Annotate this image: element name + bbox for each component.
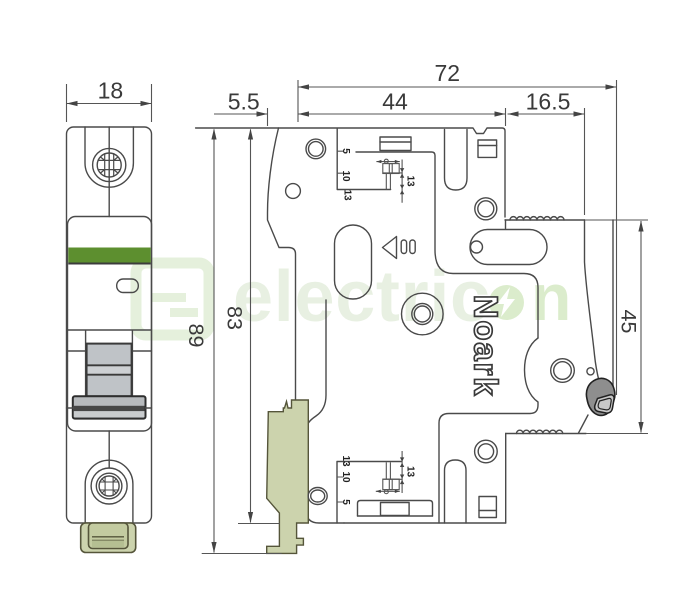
svg-text:13: 13 xyxy=(342,189,353,201)
svg-text:5: 5 xyxy=(340,499,351,505)
svg-text:18: 18 xyxy=(98,77,124,103)
svg-text:44: 44 xyxy=(382,89,408,115)
svg-text:5.5: 5.5 xyxy=(228,89,260,115)
svg-text:83: 83 xyxy=(223,306,247,330)
svg-text:72: 72 xyxy=(435,60,461,86)
svg-text:45: 45 xyxy=(617,310,641,334)
svg-text:5: 5 xyxy=(340,148,351,154)
svg-text:n: n xyxy=(531,260,571,334)
svg-text:10: 10 xyxy=(340,170,351,182)
svg-text:Noark: Noark xyxy=(468,295,505,398)
svg-text:13: 13 xyxy=(405,466,416,478)
svg-text:13: 13 xyxy=(405,175,416,187)
svg-text:10: 10 xyxy=(340,471,351,483)
svg-text:16.5: 16.5 xyxy=(526,89,571,115)
svg-text:89: 89 xyxy=(184,324,208,348)
svg-text:13: 13 xyxy=(340,455,351,467)
